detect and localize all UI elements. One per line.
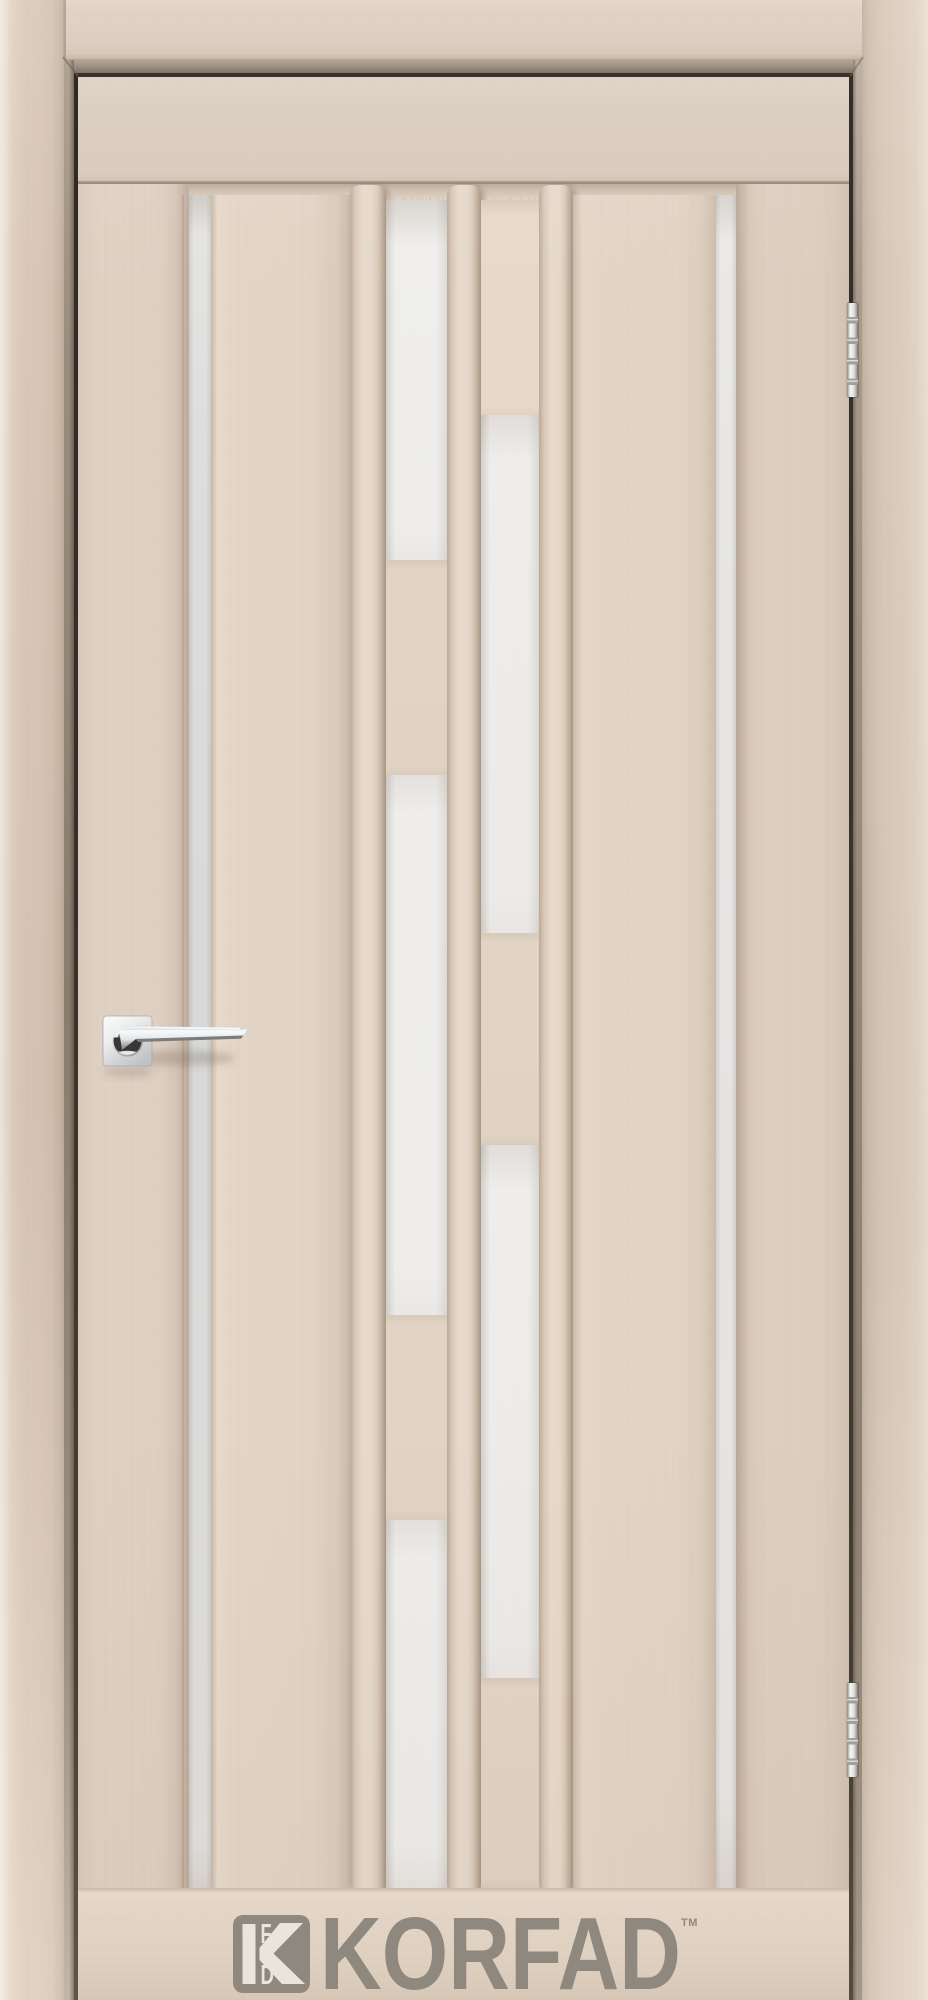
svg-text:TM: TM: [681, 1917, 698, 1929]
svg-text:D: D: [261, 1959, 275, 1990]
svg-text:F: F: [261, 1918, 272, 1949]
svg-text:KORFAD: KORFAD: [320, 1900, 681, 2000]
